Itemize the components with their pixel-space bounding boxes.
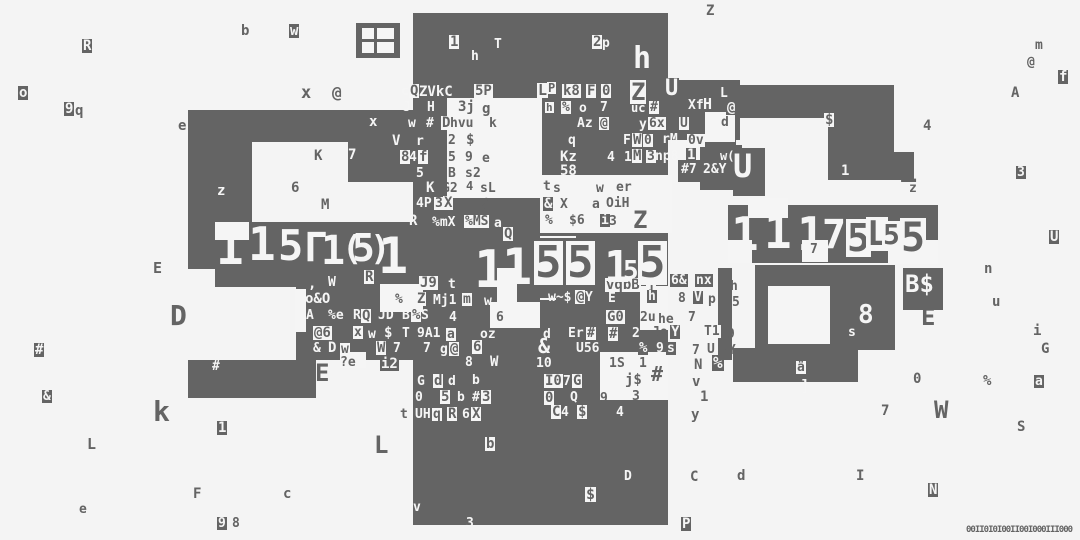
glyph: OiH — [606, 197, 629, 210]
glyph: @6 — [313, 326, 332, 340]
glyph: B — [402, 309, 410, 322]
glyph: 1 — [217, 421, 227, 435]
glyph: b — [485, 437, 495, 451]
glyph: % — [712, 355, 724, 371]
glyph: W — [376, 341, 386, 355]
glyph: C — [551, 405, 561, 419]
glyph: K — [314, 149, 322, 163]
glyph: Z — [633, 208, 647, 232]
glyph: 5 — [416, 167, 424, 180]
glyph: D — [328, 341, 336, 355]
glyph: ?e — [340, 356, 356, 369]
glyph: ] — [800, 378, 810, 394]
glyph: 4 — [616, 406, 624, 419]
glyph: h — [633, 44, 651, 74]
glyph: G — [417, 375, 425, 388]
glyph: 5 — [440, 390, 450, 404]
glyph: 5 — [278, 225, 303, 267]
glyph: d — [433, 374, 443, 388]
glyph: @ — [332, 85, 342, 101]
glyph: rM — [662, 133, 678, 146]
glyph: 7 — [692, 344, 700, 357]
glyph: 4P — [416, 197, 432, 210]
glyph: 2 — [448, 134, 456, 147]
glyph: 9 — [64, 102, 74, 116]
glyph: E — [315, 361, 329, 385]
glyph: t — [400, 408, 408, 421]
glyph: 2u — [640, 311, 656, 324]
glyph: # — [649, 101, 659, 114]
glyph: P — [547, 82, 556, 94]
glyph: L — [87, 437, 96, 452]
glyph: m — [1035, 39, 1043, 52]
glyph: w — [340, 343, 350, 356]
glyph: b — [472, 374, 480, 387]
glyph: o — [18, 86, 28, 100]
glyph: w — [596, 182, 604, 195]
glyph: t — [448, 278, 456, 291]
glyph: 5 — [900, 218, 926, 258]
glyph: W — [328, 276, 336, 289]
glyph: i — [1033, 324, 1041, 338]
glyph: 0 — [415, 391, 423, 404]
glyph: 7 — [348, 148, 356, 162]
glyph: f — [1058, 70, 1068, 84]
glyph: 0 — [544, 391, 554, 405]
glyph: o — [579, 102, 587, 115]
glyph: 2 — [592, 35, 602, 49]
glyph: #7 — [681, 163, 697, 176]
glyph: k8 — [562, 84, 581, 98]
glyph: 7 — [563, 375, 571, 388]
glyph: s — [848, 326, 856, 339]
glyph: Xf — [688, 99, 704, 112]
glyph: er — [616, 181, 632, 194]
glyph: 7 — [393, 342, 401, 355]
glyph: 1 — [216, 225, 244, 271]
glyph: & — [313, 342, 321, 355]
glyph: p — [708, 293, 716, 306]
glyph: 3 — [609, 215, 617, 228]
glyph: UH — [415, 408, 431, 421]
glyph: 7 — [822, 215, 846, 255]
glyph: q — [568, 134, 576, 147]
glyph: z — [216, 184, 226, 198]
glyph: T1 — [703, 325, 721, 338]
glyph: # — [34, 343, 44, 357]
glyph: K — [425, 181, 435, 195]
glyph: V — [391, 134, 401, 148]
glyph: 1 — [248, 221, 276, 267]
glyph: h — [730, 280, 738, 293]
glyph: 4 — [466, 180, 473, 192]
glyph: % — [561, 101, 571, 114]
glyph: R — [353, 309, 361, 322]
glyph: U — [1049, 230, 1059, 244]
glyph: 8 — [232, 517, 240, 530]
glyph: @ — [482, 197, 490, 210]
glyph: w~$ — [548, 291, 571, 304]
glyph: W — [934, 398, 948, 422]
glyph: q — [75, 104, 83, 118]
glyph: 4 — [449, 311, 457, 324]
glyph: B — [448, 167, 456, 180]
glyph: # — [586, 327, 596, 340]
glyph: w — [408, 117, 416, 130]
glyph: x — [353, 326, 363, 339]
glyph: 4 — [923, 119, 931, 133]
glyph: s — [666, 342, 676, 355]
glyph: 2 — [632, 327, 640, 340]
glyph: L — [720, 87, 728, 100]
glyph: s — [552, 182, 562, 195]
glyph: G0 — [606, 310, 625, 324]
glyph: 9 — [217, 517, 227, 530]
glyph: a — [446, 328, 456, 341]
glyph: S — [1017, 420, 1025, 434]
glyph: 5 — [448, 151, 456, 164]
glyph: % — [395, 293, 403, 306]
glyph: , — [308, 277, 316, 291]
glyph: Q — [409, 84, 419, 98]
glyph: B$ — [905, 272, 934, 296]
glyph: 1 — [686, 148, 696, 162]
glyph: # — [426, 117, 434, 130]
glyph: # — [650, 364, 664, 384]
glyph: 1 — [378, 231, 408, 281]
glyph: G2 — [442, 182, 458, 195]
glyph: ä — [796, 361, 806, 374]
glyph: 8 — [678, 292, 686, 305]
glyph: sL — [480, 182, 496, 195]
glyph: d — [737, 469, 745, 483]
glyph: uc — [631, 102, 645, 114]
glyph: Y — [585, 291, 593, 304]
glyph: e — [79, 503, 87, 516]
glyph: 5P — [474, 84, 493, 98]
glyph: t — [543, 180, 551, 193]
glyph: $ — [384, 326, 392, 340]
glyph: @ — [1026, 56, 1036, 69]
glyph: n — [984, 262, 992, 276]
glyph: w — [368, 328, 376, 341]
glyph: 10 — [536, 357, 552, 370]
glyph: J — [403, 101, 411, 114]
glyphs-layer: ZRbwo9qex@K7xz6MED#&k1LeFc98#E?em@fA43Un… — [0, 0, 1080, 540]
glitch-canvas: ZRbwo9qex@K7xz6MED#&k1LeFc98#E?em@fA43Un… — [0, 0, 1080, 540]
glyph: & — [538, 336, 550, 356]
glyph: h — [471, 50, 479, 63]
glyph: $6 — [569, 214, 585, 227]
glyph: S — [617, 357, 625, 370]
glyph: Q — [570, 391, 578, 404]
glyph: w — [289, 24, 299, 38]
glyph: 1 — [639, 357, 647, 370]
glyph: d — [721, 116, 729, 129]
glyph: o&O — [305, 292, 330, 306]
glyph: 6 — [291, 181, 299, 195]
glyph: X — [471, 407, 481, 421]
glyph: @ — [599, 117, 609, 130]
glyph: I — [856, 469, 864, 483]
glyph: 2&Y — [703, 163, 726, 176]
glyph: x — [301, 85, 311, 102]
glyph: # — [212, 360, 220, 373]
glyph: JD — [378, 309, 394, 322]
glyph: U — [679, 117, 689, 130]
glyph: 6 — [496, 311, 504, 324]
glyph: a — [592, 198, 600, 211]
glyph: k — [489, 117, 497, 130]
glyph: m — [462, 293, 472, 306]
glyph: 7 — [881, 404, 889, 418]
glyph: 6x — [648, 117, 666, 130]
glyph: $ — [585, 487, 596, 502]
glyph: 9A1 — [417, 327, 440, 340]
glyph: 9 — [600, 392, 608, 405]
glyph: hvu — [450, 117, 473, 130]
glyph: 4 — [561, 406, 569, 419]
glyph: N — [694, 358, 702, 372]
glyph: @ — [726, 101, 736, 115]
glyph: r — [416, 135, 424, 148]
glyph: Jo — [652, 326, 668, 339]
glyph: %mX — [432, 216, 455, 229]
glyph: S — [421, 309, 429, 322]
glyph: j$ — [625, 373, 642, 387]
glyph: 8 — [858, 302, 874, 328]
glyph: 1 — [502, 242, 532, 292]
glyph: D — [170, 302, 187, 330]
glyph: 3 — [481, 390, 491, 404]
glyph: 5 — [623, 258, 639, 284]
glyph: I0 — [544, 374, 563, 388]
glyph: G — [572, 374, 582, 388]
glyph: 1 — [731, 211, 759, 257]
glyph: Mj1 — [433, 294, 456, 307]
glyph: T — [402, 327, 410, 340]
glyph: 4 — [607, 151, 615, 164]
glyph: 5 — [732, 296, 740, 309]
glyph: W — [489, 355, 499, 369]
glyph: # — [608, 327, 618, 341]
glyph: Kz — [560, 150, 577, 164]
glyph: J9 — [419, 276, 438, 290]
glyph: 7 — [423, 342, 431, 355]
glyph: X — [560, 198, 568, 211]
glyph: %e — [328, 309, 344, 322]
glyph: 0 — [913, 372, 921, 386]
binary-code-text: 00II0I0I00II00I000III000 — [966, 526, 1072, 535]
glyph: U — [664, 78, 679, 100]
glyph: k — [153, 398, 170, 426]
glyph: 0 — [601, 84, 611, 98]
glyph: h — [647, 290, 657, 303]
glyph: E — [153, 261, 162, 276]
glyph: $ — [465, 133, 475, 147]
glyph: 4 — [409, 151, 417, 164]
glyph: u — [992, 295, 1000, 309]
glyph: a — [1034, 375, 1044, 388]
glyph: W — [632, 133, 642, 147]
glyph: 6& — [670, 274, 688, 287]
glyph: 5 — [566, 241, 595, 285]
glyph: C — [690, 470, 698, 484]
glyph: 5 — [534, 241, 563, 285]
glyph: F — [193, 487, 201, 501]
glyph: Y — [670, 325, 680, 339]
glyph: 9 — [727, 328, 735, 341]
glyph: & — [42, 390, 52, 403]
glyph: x — [369, 115, 377, 129]
glyph: 3 — [466, 517, 474, 530]
glyph: a — [494, 217, 502, 230]
glyph: %MS — [464, 215, 489, 228]
glyph: 0v — [687, 134, 705, 147]
glyph: L — [374, 433, 388, 457]
glyph: N — [928, 483, 938, 497]
glyph: 7 — [688, 311, 696, 324]
glyph: $ — [824, 113, 834, 127]
glyph: 1 — [700, 390, 708, 404]
glyph: f — [418, 150, 428, 164]
glyph: c — [283, 487, 291, 501]
glyph: A — [306, 309, 314, 322]
glyph: Z — [706, 4, 714, 18]
glyph: A — [1011, 86, 1019, 100]
glyph: X — [443, 196, 453, 210]
glyph: Az — [577, 117, 593, 130]
glyph: % — [638, 341, 648, 355]
glyph: d — [448, 375, 456, 388]
glyph: 0 — [643, 134, 653, 147]
glyph: g — [440, 343, 448, 356]
glyph: & — [543, 197, 553, 211]
glyph: V — [693, 291, 703, 304]
glyph: R — [364, 270, 374, 284]
glyph: P — [681, 517, 691, 531]
glyph: 1 — [474, 244, 505, 296]
glyph: G — [1041, 342, 1049, 356]
glyph: v — [692, 375, 700, 389]
glyph: Q — [361, 309, 371, 323]
glyph: # — [472, 391, 480, 404]
glyph: @ — [575, 290, 585, 304]
glyph: 5 — [638, 241, 667, 285]
glyph: g — [482, 102, 490, 116]
glyph: % — [545, 214, 553, 227]
glyph: R — [447, 407, 457, 421]
glyph: F — [623, 134, 631, 147]
glyph: 1 — [764, 209, 792, 255]
glyph: E — [921, 305, 935, 329]
glyph: H — [427, 101, 435, 114]
glyph: e — [178, 119, 186, 133]
glyph: y — [691, 408, 699, 422]
glyph: 7 — [810, 243, 818, 256]
glyph: E — [608, 292, 616, 305]
glyph: Z — [416, 292, 426, 306]
glyph: h — [545, 102, 554, 113]
glyph: Er — [568, 327, 584, 340]
glyph: 7 — [600, 101, 608, 114]
glyph: F — [586, 84, 596, 98]
glyph: M — [632, 149, 642, 163]
glyph: U — [733, 150, 752, 182]
glyph: 9 — [465, 151, 473, 164]
glyph: 2 — [473, 167, 481, 180]
glyph: 1 — [624, 151, 632, 164]
glyph: v — [413, 501, 421, 514]
glyph: @ — [449, 342, 459, 356]
glyph: % — [411, 308, 421, 322]
glyph: 5 — [882, 221, 901, 249]
glyph: T — [494, 38, 502, 51]
glyph: nx — [695, 274, 713, 287]
glyph: R — [409, 214, 417, 228]
glyph: R — [82, 39, 92, 53]
glyph: i2 — [380, 357, 399, 371]
glyph: y — [639, 118, 647, 131]
glyph: M — [321, 198, 329, 212]
glyph: b — [457, 391, 465, 404]
glyph: U56 — [576, 342, 599, 355]
glyph: q — [432, 408, 442, 421]
glyph: c — [401, 85, 409, 98]
glyph: 3j — [458, 100, 475, 114]
glyph: np8 — [655, 150, 678, 163]
glyph: b — [241, 24, 249, 38]
glyph: 58 — [560, 164, 577, 178]
glyph: 3 — [632, 390, 640, 403]
glyph: e — [482, 152, 490, 165]
glyph: z — [909, 182, 917, 195]
glyph: 8 — [465, 356, 473, 369]
glyph: p — [602, 37, 610, 50]
glyph: 9 — [656, 342, 664, 355]
glyph: % — [755, 295, 763, 308]
glyph: 3 — [1016, 166, 1026, 179]
glyph: % — [983, 374, 991, 388]
glyph: 1 — [449, 35, 459, 49]
glyph: 6 — [462, 408, 470, 421]
glyph: 1 — [841, 164, 849, 178]
glyph: 6 — [472, 340, 482, 354]
glyph: D — [624, 470, 632, 483]
glyph: ZVkC — [419, 85, 453, 99]
glyph: $ — [577, 405, 587, 419]
